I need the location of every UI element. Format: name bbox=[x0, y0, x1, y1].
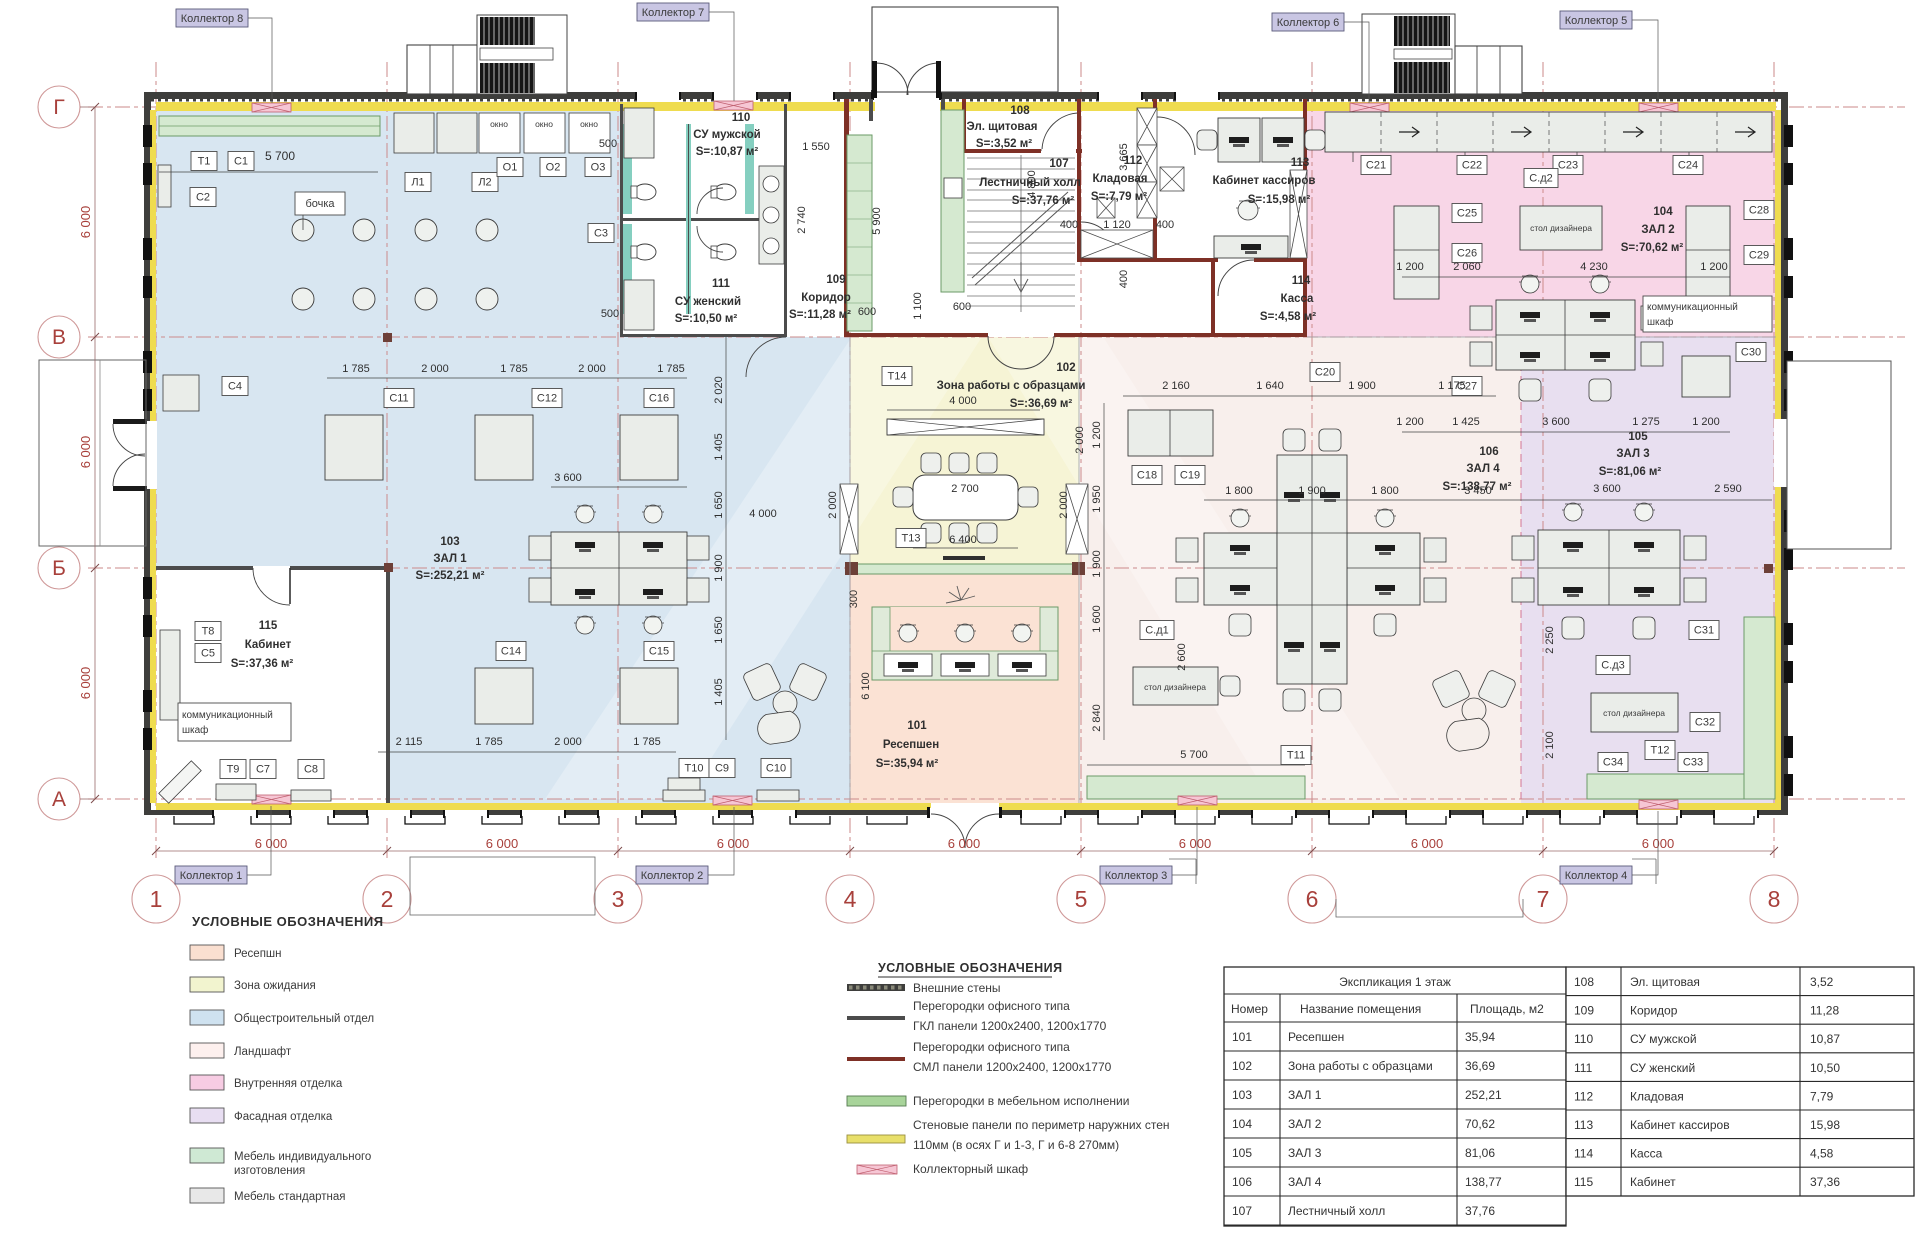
svg-text:2 700: 2 700 bbox=[951, 483, 979, 495]
svg-text:600: 600 bbox=[858, 306, 876, 318]
svg-text:Т10: Т10 bbox=[685, 763, 704, 775]
svg-text:114: 114 bbox=[1574, 1147, 1593, 1161]
svg-text:О3: О3 bbox=[591, 162, 606, 174]
svg-text:Номер: Номер bbox=[1231, 1002, 1268, 1016]
svg-text:Ландшафт: Ландшафт bbox=[234, 1046, 292, 1058]
svg-text:Эл. щитовая: Эл. щитовая bbox=[967, 121, 1038, 133]
svg-text:6 400: 6 400 bbox=[949, 534, 977, 546]
svg-text:Эл. щитовая: Эл. щитовая bbox=[1630, 975, 1700, 989]
svg-text:400: 400 bbox=[1156, 219, 1174, 231]
svg-text:138,77: 138,77 bbox=[1465, 1175, 1502, 1189]
svg-text:S=:138,77 м²: S=:138,77 м² bbox=[1443, 481, 1512, 493]
svg-text:1 785: 1 785 bbox=[342, 363, 370, 375]
svg-text:СУ мужской: СУ мужской bbox=[693, 129, 761, 141]
svg-text:С1: С1 bbox=[234, 156, 248, 168]
svg-text:ГКЛ панели 1200х2400, 1200х177: ГКЛ панели 1200х2400, 1200х1770 bbox=[913, 1019, 1107, 1033]
svg-text:С16: С16 bbox=[649, 393, 669, 405]
svg-text:110: 110 bbox=[732, 112, 751, 124]
svg-text:8: 8 bbox=[1768, 886, 1781, 912]
svg-text:10,50: 10,50 bbox=[1810, 1061, 1840, 1075]
svg-text:Мебель индивидуального: Мебель индивидуального bbox=[234, 1151, 371, 1163]
svg-text:С30: С30 bbox=[1741, 347, 1761, 359]
svg-text:1 950: 1 950 bbox=[1091, 485, 1103, 513]
svg-text:1 405: 1 405 bbox=[713, 433, 725, 461]
svg-text:108: 108 bbox=[1010, 105, 1030, 117]
svg-text:Кладовая: Кладовая bbox=[1092, 173, 1147, 185]
svg-text:S=:252,21 м²: S=:252,21 м² bbox=[416, 570, 485, 582]
svg-text:107: 107 bbox=[1049, 158, 1068, 170]
svg-text:Зона работы с образцами: Зона работы с образцами bbox=[1288, 1059, 1433, 1073]
svg-text:36,69: 36,69 bbox=[1465, 1059, 1495, 1073]
svg-text:Перегородки в мебельном исполн: Перегородки в мебельном исполнении bbox=[913, 1094, 1129, 1108]
svg-text:2 000: 2 000 bbox=[1058, 491, 1070, 519]
svg-text:С21: С21 bbox=[1366, 160, 1386, 172]
svg-text:стол дизайнера: стол дизайнера bbox=[1144, 682, 1206, 692]
svg-text:Касса: Касса bbox=[1281, 293, 1314, 305]
svg-text:С10: С10 bbox=[766, 763, 786, 775]
svg-text:104: 104 bbox=[1232, 1117, 1252, 1131]
svg-text:С23: С23 bbox=[1558, 160, 1578, 172]
svg-text:окно: окно bbox=[490, 119, 508, 129]
svg-text:ЗАЛ 4: ЗАЛ 4 bbox=[1466, 463, 1500, 475]
svg-text:S=:10,50 м²: S=:10,50 м² bbox=[675, 313, 738, 325]
svg-text:S=:81,06 м²: S=:81,06 м² bbox=[1599, 466, 1662, 478]
svg-text:1 550: 1 550 bbox=[802, 141, 830, 153]
svg-text:С19: С19 bbox=[1180, 470, 1200, 482]
svg-text:1 200: 1 200 bbox=[1692, 416, 1720, 428]
svg-text:Перегородки офисного типа: Перегородки офисного типа bbox=[913, 1040, 1070, 1054]
svg-text:О1: О1 bbox=[503, 162, 518, 174]
svg-text:Т1: Т1 bbox=[198, 156, 211, 168]
svg-text:3: 3 bbox=[612, 886, 625, 912]
svg-text:2 000: 2 000 bbox=[1074, 426, 1086, 454]
svg-text:11,28: 11,28 bbox=[1810, 1004, 1839, 1018]
svg-text:108: 108 bbox=[1574, 975, 1594, 989]
svg-text:Т11: Т11 bbox=[1287, 750, 1305, 762]
svg-text:2: 2 bbox=[381, 886, 394, 912]
svg-text:С31: С31 bbox=[1694, 625, 1714, 637]
svg-text:112: 112 bbox=[1574, 1089, 1593, 1103]
svg-text:1 800: 1 800 bbox=[1371, 485, 1399, 497]
svg-text:2 060: 2 060 bbox=[1453, 261, 1481, 273]
svg-text:С.д1: С.д1 bbox=[1145, 625, 1169, 637]
svg-text:Название помещения: Название помещения bbox=[1300, 1002, 1421, 1016]
svg-text:Коллектор 3: Коллектор 3 bbox=[1105, 870, 1168, 882]
svg-text:С2: С2 bbox=[196, 192, 210, 204]
svg-text:Зона ожидания: Зона ожидания bbox=[234, 980, 316, 992]
svg-text:113: 113 bbox=[1574, 1118, 1593, 1132]
svg-text:С34: С34 bbox=[1603, 757, 1623, 769]
svg-text:500: 500 bbox=[601, 308, 619, 320]
svg-text:4: 4 bbox=[844, 886, 857, 912]
svg-text:112: 112 bbox=[1124, 155, 1143, 167]
svg-text:С9: С9 bbox=[715, 763, 729, 775]
svg-text:109: 109 bbox=[1574, 1004, 1594, 1018]
svg-text:Коридор: Коридор bbox=[1630, 1004, 1678, 1018]
svg-text:Кабинет: Кабинет bbox=[245, 639, 292, 651]
svg-text:2 840: 2 840 bbox=[1091, 704, 1103, 732]
svg-text:400: 400 bbox=[1118, 270, 1130, 288]
svg-text:СУ мужской: СУ мужской bbox=[1630, 1032, 1697, 1046]
svg-text:С11: С11 bbox=[389, 393, 408, 405]
svg-text:252,21: 252,21 bbox=[1465, 1088, 1502, 1102]
svg-text:4 000: 4 000 bbox=[949, 395, 977, 407]
svg-text:10,87: 10,87 bbox=[1810, 1032, 1840, 1046]
svg-text:Коллектор 5: Коллектор 5 bbox=[1565, 15, 1628, 27]
svg-text:Кабинет кассиров: Кабинет кассиров bbox=[1213, 175, 1316, 187]
svg-text:37,36: 37,36 bbox=[1810, 1175, 1840, 1189]
svg-text:С.д2: С.д2 bbox=[1529, 173, 1553, 185]
svg-text:115: 115 bbox=[259, 620, 278, 632]
svg-text:ЗАЛ 3: ЗАЛ 3 bbox=[1288, 1146, 1322, 1160]
svg-text:ЗАЛ 2: ЗАЛ 2 bbox=[1288, 1117, 1322, 1131]
svg-text:3,52: 3,52 bbox=[1810, 975, 1834, 989]
svg-text:Лестничный холл: Лестничный холл bbox=[1288, 1204, 1385, 1218]
svg-text:S=:11,28 м²: S=:11,28 м² bbox=[789, 309, 851, 321]
svg-text:1 120: 1 120 bbox=[1103, 219, 1131, 231]
svg-text:Площадь, м2: Площадь, м2 bbox=[1470, 1002, 1544, 1016]
svg-text:С32: С32 bbox=[1695, 717, 1715, 729]
svg-text:Коридор: Коридор bbox=[801, 292, 851, 304]
svg-text:С20: С20 bbox=[1315, 367, 1335, 379]
svg-text:ЗАЛ 3: ЗАЛ 3 bbox=[1616, 448, 1649, 460]
svg-text:Стеновые панели по периметр на: Стеновые панели по периметр наружних сте… bbox=[913, 1118, 1170, 1132]
svg-text:1 900: 1 900 bbox=[713, 554, 725, 582]
svg-text:Кабинет кассиров: Кабинет кассиров bbox=[1630, 1118, 1730, 1132]
svg-text:S=:37,76 м²: S=:37,76 м² bbox=[1012, 195, 1075, 207]
svg-text:2 115: 2 115 bbox=[396, 736, 423, 748]
svg-text:Кладовая: Кладовая bbox=[1630, 1089, 1684, 1103]
svg-text:35,94: 35,94 bbox=[1465, 1030, 1495, 1044]
svg-text:С12: С12 bbox=[537, 393, 557, 405]
svg-text:С4: С4 bbox=[228, 381, 242, 393]
svg-text:А: А bbox=[52, 788, 66, 811]
svg-text:103: 103 bbox=[440, 536, 459, 548]
svg-text:37,76: 37,76 bbox=[1465, 1204, 1495, 1218]
svg-text:1 200: 1 200 bbox=[1091, 421, 1103, 449]
svg-text:СУ женский: СУ женский bbox=[1630, 1061, 1695, 1075]
svg-text:изготовления: изготовления bbox=[234, 1165, 305, 1177]
svg-text:1 200: 1 200 bbox=[1700, 261, 1728, 273]
svg-text:S=:70,62 м²: S=:70,62 м² bbox=[1621, 242, 1684, 254]
svg-text:1 785: 1 785 bbox=[475, 736, 503, 748]
svg-text:1: 1 bbox=[150, 886, 163, 912]
svg-text:S=:35,94 м²: S=:35,94 м² bbox=[876, 758, 939, 770]
svg-text:Общестроительный отдел: Общестроительный отдел bbox=[234, 1013, 374, 1025]
svg-text:S=:15,98 м²: S=:15,98 м² bbox=[1248, 194, 1311, 206]
svg-text:1 900: 1 900 bbox=[1298, 485, 1326, 497]
svg-text:С22: С22 bbox=[1462, 160, 1482, 172]
svg-text:500: 500 bbox=[599, 138, 617, 150]
svg-text:ЗАЛ 2: ЗАЛ 2 bbox=[1641, 224, 1674, 236]
svg-text:6 100: 6 100 bbox=[860, 672, 872, 700]
svg-text:105: 105 bbox=[1232, 1146, 1252, 1160]
svg-text:Коллектор 4: Коллектор 4 bbox=[1565, 870, 1628, 882]
svg-text:Коллектор 8: Коллектор 8 bbox=[181, 13, 244, 25]
svg-text:Ресепшен: Ресепшен bbox=[1288, 1030, 1344, 1044]
svg-text:400: 400 bbox=[1060, 219, 1078, 231]
svg-text:Лестничный холл: Лестничный холл bbox=[979, 177, 1081, 189]
svg-text:С18: С18 bbox=[1137, 470, 1157, 482]
svg-text:С28: С28 bbox=[1749, 205, 1769, 217]
svg-text:2 000: 2 000 bbox=[421, 363, 449, 375]
svg-text:С.д3: С.д3 bbox=[1601, 660, 1625, 672]
svg-text:1 785: 1 785 bbox=[657, 363, 685, 375]
svg-text:Т13: Т13 bbox=[902, 533, 921, 545]
svg-text:S=:3,52 м²: S=:3,52 м² bbox=[976, 138, 1032, 150]
svg-text:70,62: 70,62 bbox=[1465, 1117, 1495, 1131]
svg-text:6 000: 6 000 bbox=[717, 836, 750, 851]
svg-text:1 650: 1 650 bbox=[713, 616, 725, 644]
svg-text:коммуникационный: коммуникационный bbox=[182, 710, 273, 721]
svg-text:окно: окно bbox=[580, 119, 598, 129]
svg-text:УСЛОВНЫЕ ОБОЗНАЧЕНИЯ: УСЛОВНЫЕ ОБОЗНАЧЕНИЯ bbox=[878, 961, 1063, 975]
svg-text:Перегородки офисного типа: Перегородки офисного типа bbox=[913, 999, 1070, 1013]
svg-text:Кабинет: Кабинет bbox=[1630, 1175, 1676, 1189]
svg-text:6 000: 6 000 bbox=[948, 836, 981, 851]
svg-text:2 600: 2 600 bbox=[1176, 643, 1188, 671]
svg-text:S=:37,36 м²: S=:37,36 м² bbox=[231, 658, 294, 670]
svg-text:С5: С5 bbox=[201, 648, 215, 660]
svg-text:стол дизайнера: стол дизайнера bbox=[1603, 708, 1665, 718]
svg-text:5 700: 5 700 bbox=[265, 149, 295, 163]
svg-text:шкаф: шкаф bbox=[1647, 316, 1673, 328]
svg-text:110: 110 bbox=[1574, 1032, 1593, 1046]
svg-text:С33: С33 bbox=[1683, 757, 1703, 769]
svg-text:106: 106 bbox=[1479, 446, 1498, 458]
svg-text:бочка: бочка bbox=[305, 198, 335, 210]
svg-text:1 275: 1 275 bbox=[1632, 416, 1660, 428]
svg-text:106: 106 bbox=[1232, 1175, 1252, 1189]
svg-text:7: 7 bbox=[1537, 886, 1550, 912]
svg-text:104: 104 bbox=[1653, 206, 1673, 218]
svg-text:Т12: Т12 bbox=[1651, 745, 1670, 757]
svg-text:6 000: 6 000 bbox=[78, 436, 93, 469]
svg-text:6 000: 6 000 bbox=[1411, 836, 1444, 851]
svg-text:107: 107 bbox=[1232, 1204, 1252, 1218]
svg-text:СУ женский: СУ женский bbox=[675, 296, 741, 308]
svg-text:1 425: 1 425 bbox=[1452, 416, 1480, 428]
svg-text:2 000: 2 000 bbox=[827, 491, 839, 519]
svg-text:1 405: 1 405 bbox=[713, 678, 725, 706]
svg-text:Касса: Касса bbox=[1630, 1147, 1663, 1161]
svg-text:Ресепшен: Ресепшен bbox=[883, 739, 939, 751]
svg-text:7,79: 7,79 bbox=[1810, 1089, 1834, 1103]
svg-text:6 000: 6 000 bbox=[78, 206, 93, 239]
svg-text:С3: С3 bbox=[594, 228, 608, 240]
svg-text:4 000: 4 000 bbox=[749, 508, 777, 520]
svg-text:5: 5 bbox=[1075, 886, 1088, 912]
svg-text:103: 103 bbox=[1232, 1088, 1252, 1102]
svg-text:1 650: 1 650 bbox=[713, 491, 725, 519]
svg-text:S=:36,69 м²: S=:36,69 м² bbox=[1010, 398, 1073, 410]
svg-text:Б: Б bbox=[52, 557, 66, 580]
svg-text:Коллектор 1: Коллектор 1 bbox=[180, 870, 243, 882]
svg-text:113: 113 bbox=[1291, 157, 1310, 169]
svg-text:2 160: 2 160 bbox=[1162, 380, 1190, 392]
svg-text:4 230: 4 230 bbox=[1580, 261, 1608, 273]
svg-text:Экспликация 1 этаж: Экспликация 1 этаж bbox=[1339, 975, 1451, 989]
svg-text:1 800: 1 800 bbox=[1225, 485, 1253, 497]
svg-text:101: 101 bbox=[907, 720, 927, 732]
svg-text:УСЛОВНЫЕ ОБОЗНАЧЕНИЯ: УСЛОВНЫЕ ОБОЗНАЧЕНИЯ bbox=[192, 914, 384, 929]
svg-text:СМЛ панели 1200х2400, 1200х177: СМЛ панели 1200х2400, 1200х1770 bbox=[913, 1060, 1112, 1074]
svg-text:102: 102 bbox=[1232, 1059, 1252, 1073]
svg-text:1 900: 1 900 bbox=[1348, 380, 1376, 392]
svg-text:Внутренняя отделка: Внутренняя отделка bbox=[234, 1078, 343, 1090]
svg-text:Мебель стандартная: Мебель стандартная bbox=[234, 1191, 345, 1203]
svg-text:Фасадная отделка: Фасадная отделка bbox=[234, 1111, 333, 1123]
svg-text:ЗАЛ 1: ЗАЛ 1 bbox=[433, 553, 467, 565]
svg-text:115: 115 bbox=[1574, 1175, 1593, 1189]
svg-text:5 700: 5 700 bbox=[1180, 749, 1208, 761]
svg-text:114: 114 bbox=[1292, 275, 1311, 287]
svg-text:1 100: 1 100 bbox=[912, 292, 924, 320]
svg-text:1 200: 1 200 bbox=[1396, 416, 1424, 428]
svg-text:6 000: 6 000 bbox=[486, 836, 519, 851]
svg-text:1 600: 1 600 bbox=[1091, 605, 1103, 633]
svg-text:2 250: 2 250 bbox=[1544, 626, 1556, 654]
svg-text:Л1: Л1 bbox=[411, 177, 424, 189]
svg-text:110мм (в осях Г и 1-3, Г и 6-8: 110мм (в осях Г и 1-3, Г и 6-8 270мм) bbox=[913, 1138, 1119, 1152]
svg-text:2 000: 2 000 bbox=[578, 363, 606, 375]
svg-text:Коллектор 6: Коллектор 6 bbox=[1277, 17, 1340, 29]
svg-text:105: 105 bbox=[1628, 431, 1648, 443]
svg-text:1 900: 1 900 bbox=[1091, 550, 1103, 578]
svg-text:Т9: Т9 bbox=[227, 764, 240, 776]
svg-text:1 785: 1 785 bbox=[633, 736, 661, 748]
svg-text:С14: С14 bbox=[501, 646, 521, 658]
svg-text:111: 111 bbox=[712, 278, 731, 290]
svg-text:С24: С24 bbox=[1678, 160, 1698, 172]
svg-text:С8: С8 bbox=[304, 764, 318, 776]
svg-text:1 640: 1 640 bbox=[1256, 380, 1284, 392]
svg-text:2 020: 2 020 bbox=[713, 376, 725, 404]
svg-text:81,06: 81,06 bbox=[1465, 1146, 1495, 1160]
svg-text:Ресепшн: Ресепшн bbox=[234, 948, 282, 960]
svg-text:S=:10,87 м²: S=:10,87 м² bbox=[696, 146, 759, 158]
svg-text:Т14: Т14 bbox=[888, 371, 907, 383]
svg-text:Г: Г bbox=[53, 96, 64, 119]
svg-text:109: 109 bbox=[826, 274, 845, 286]
svg-text:Коллектор 2: Коллектор 2 bbox=[641, 870, 704, 882]
svg-text:С7: С7 bbox=[256, 764, 270, 776]
svg-text:С15: С15 bbox=[649, 646, 669, 658]
svg-text:2 100: 2 100 bbox=[1544, 731, 1556, 759]
svg-text:С25: С25 bbox=[1457, 208, 1477, 220]
svg-text:3 600: 3 600 bbox=[1593, 483, 1621, 495]
svg-text:15,98: 15,98 bbox=[1810, 1118, 1840, 1132]
svg-text:О2: О2 bbox=[546, 162, 561, 174]
svg-text:1 200: 1 200 bbox=[1396, 261, 1424, 273]
svg-text:3 600: 3 600 bbox=[1542, 416, 1570, 428]
svg-text:окно: окно bbox=[535, 119, 553, 129]
svg-text:Коллектор 7: Коллектор 7 bbox=[642, 7, 705, 19]
svg-text:600: 600 bbox=[953, 301, 971, 313]
svg-text:4,58: 4,58 bbox=[1810, 1147, 1834, 1161]
svg-text:5 900: 5 900 bbox=[871, 207, 883, 235]
svg-text:102: 102 bbox=[1056, 362, 1075, 374]
svg-text:2 740: 2 740 bbox=[796, 206, 808, 234]
svg-text:шкаф: шкаф bbox=[182, 724, 208, 736]
svg-text:6 000: 6 000 bbox=[1179, 836, 1212, 851]
svg-text:ЗАЛ 4: ЗАЛ 4 bbox=[1288, 1175, 1322, 1189]
svg-text:Т8: Т8 bbox=[202, 626, 215, 638]
svg-text:С29: С29 bbox=[1749, 250, 1769, 262]
svg-text:1 175: 1 175 bbox=[1438, 380, 1466, 392]
svg-text:300: 300 bbox=[848, 590, 860, 608]
svg-text:2 000: 2 000 bbox=[554, 736, 582, 748]
svg-text:3 600: 3 600 bbox=[554, 472, 582, 484]
svg-text:S=:7,79 м²: S=:7,79 м² bbox=[1091, 191, 1147, 203]
svg-text:стол дизайнера: стол дизайнера bbox=[1530, 223, 1592, 233]
svg-text:ЗАЛ 1: ЗАЛ 1 bbox=[1288, 1088, 1322, 1102]
svg-text:S=:4,58 м²: S=:4,58 м² bbox=[1260, 311, 1316, 323]
svg-text:Л2: Л2 bbox=[478, 177, 491, 189]
svg-text:Коллекторный шкаф: Коллекторный шкаф bbox=[913, 1162, 1028, 1176]
svg-text:коммуникационный: коммуникационный bbox=[1647, 302, 1738, 313]
svg-text:1 785: 1 785 bbox=[500, 363, 528, 375]
svg-text:Внешние стены: Внешние стены bbox=[913, 981, 1001, 995]
svg-text:Зона работы с образцами: Зона работы с образцами bbox=[937, 380, 1086, 392]
svg-text:6 000: 6 000 bbox=[78, 667, 93, 700]
svg-text:6: 6 bbox=[1306, 886, 1319, 912]
svg-text:2 590: 2 590 bbox=[1714, 483, 1742, 495]
svg-text:В: В bbox=[52, 326, 66, 349]
svg-text:101: 101 bbox=[1232, 1030, 1252, 1044]
svg-text:111: 111 bbox=[1574, 1061, 1593, 1075]
svg-text:С26: С26 bbox=[1457, 248, 1477, 260]
